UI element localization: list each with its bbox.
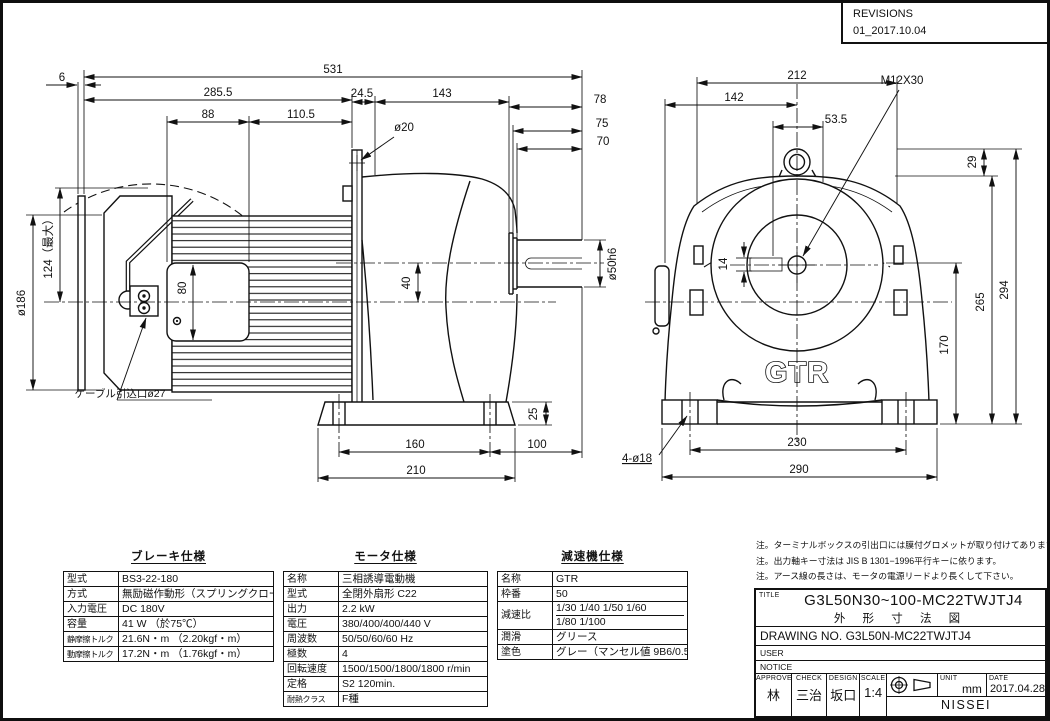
side-view [44, 150, 604, 458]
reducer-spec-title: 減速機仕様 [497, 548, 688, 564]
spec-row: 電圧380/400/400/440 V [284, 617, 488, 632]
dim-80: 80 [177, 282, 189, 295]
spec-row: 入力電圧DC 180V [64, 602, 274, 617]
spec-row: 枠番50 [498, 587, 688, 602]
dim-100: 100 [527, 439, 546, 451]
spec-label: 型式 [284, 587, 339, 602]
spec-value: 17.2N・m （1.76kgf・m） [119, 647, 274, 662]
dim-70: 70 [597, 136, 610, 148]
spec-value: 2.2 kW [339, 602, 488, 617]
note-line: 注。ターミナルボックスの引出口には膜付グロメットが取り付けてあります。 [756, 538, 1048, 554]
spec-value: 1/30 1/40 1/50 1/601/80 1/100 [553, 602, 688, 630]
spec-row: 動摩擦トルク17.2N・m （1.76kgf・m） [64, 647, 274, 662]
spec-row: 周波数50/50/60/60 Hz [284, 632, 488, 647]
spec-value: 50 [553, 587, 688, 602]
spec-value: グレー（マンセル値 9B6/0.5） [553, 645, 688, 660]
notice-row: NOTICE [756, 661, 1045, 674]
spec-label: 耐熱クラス [284, 692, 339, 707]
signature-row: APPROVE 林 CHECK 三治 DESIGN 坂口 SCALE 1:4 [756, 674, 1045, 721]
unit-label: UNIT [940, 675, 958, 682]
spec-label: 容量 [64, 617, 119, 632]
spec-value: グリース [553, 630, 688, 645]
spec-label: 潤滑 [498, 630, 553, 645]
title-label: TITLE [759, 592, 780, 599]
spec-row: 回転速度1500/1500/1800/1800 r/min [284, 662, 488, 677]
dim-110-5: 110.5 [287, 109, 315, 121]
note-line: 注。アース線の長さは、モータの電源リードより長くして下さい。 [756, 569, 1048, 585]
spec-row: 容量41 W （於75℃） [64, 617, 274, 632]
spec-label: 塗色 [498, 645, 553, 660]
drawing-title: G3L50N30~100-MC22TWJTJ4 [782, 592, 1045, 609]
spec-row: 出力2.2 kW [284, 602, 488, 617]
flange-hole-label: ø20 [394, 122, 414, 134]
date-value: 2017.04.28 [990, 683, 1045, 695]
spec-value: BS3-22-180 [119, 572, 274, 587]
motor-od-label: ø186 [16, 290, 28, 316]
dimension-drawing: 6 531 285.5 88 110.5 24.5 143 78 75 [0, 0, 1050, 540]
spec-row: 潤滑グリース [498, 630, 688, 645]
drawing-no-row: DRAWING NO. G3L50N-MC22TWJTJ4 [756, 627, 1045, 646]
check-name: 三治 [792, 685, 826, 704]
title-block: TITLE G3L50N30~100-MC22TWJTJ4 外 形 寸 法 図 … [754, 588, 1047, 718]
front-view: GTR [645, 84, 952, 456]
spec-row: 方式無励磁作動形（スプリングクローズ） [64, 587, 274, 602]
spec-label: 静摩擦トルク [64, 632, 119, 647]
spec-row: 塗色グレー（マンセル値 9B6/0.5） [498, 645, 688, 660]
spec-value: 380/400/400/440 V [339, 617, 488, 632]
dim-212: 212 [787, 70, 806, 82]
title-row: TITLE G3L50N30~100-MC22TWJTJ4 外 形 寸 法 図 [756, 590, 1045, 627]
spec-value: 41 W （於75℃） [119, 617, 274, 632]
unit-value: mm [938, 682, 982, 696]
dim-25: 25 [528, 408, 540, 421]
approve-name: 林 [756, 685, 791, 704]
dim-143: 143 [432, 88, 451, 100]
dim-210: 210 [406, 465, 425, 477]
shaft-dia-label: ø50h6 [607, 248, 619, 281]
spec-row: 名称GTR [498, 572, 688, 587]
spec-label: 動摩擦トルク [64, 647, 119, 662]
unit-cell: UNIT mm [938, 674, 987, 696]
spec-value: 三相誘導電動機 [339, 572, 488, 587]
spec-subvalue: 1/30 1/40 1/50 1/60 [556, 602, 684, 615]
notice-label: NOTICE [760, 662, 792, 672]
dim-24-5: 24.5 [351, 88, 373, 100]
drawing-no: G3L50N-MC22TWJTJ4 [846, 629, 971, 643]
spec-row: 型式BS3-22-180 [64, 572, 274, 587]
dim-230: 230 [787, 437, 806, 449]
drawing-sheet: REVISIONS 01_2017.10.04 [0, 0, 1050, 721]
dim-40: 40 [401, 277, 413, 290]
dim-88: 88 [202, 109, 215, 121]
spec-label: 型式 [64, 572, 119, 587]
spec-label: 方式 [64, 587, 119, 602]
spec-label: 名称 [498, 572, 553, 587]
motor-spec-table: モータ仕様 名称三相誘導電動機型式全閉外扇形 C22出力2.2 kW電圧380/… [283, 548, 488, 707]
notes: 注。ターミナルボックスの引出口には膜付グロメットが取り付けてあります。注。出力軸… [756, 538, 1048, 585]
spec-label: 電圧 [284, 617, 339, 632]
dim-78: 78 [594, 94, 607, 106]
scale-label: SCALE [860, 675, 886, 682]
dim-294: 294 [999, 280, 1011, 300]
design-cell: DESIGN 坂口 [827, 674, 860, 721]
spec-label: 枠番 [498, 587, 553, 602]
check-label: CHECK [792, 675, 826, 682]
title-block-right: UNIT mm DATE 2017.04.28 NISSEI CORPORATI… [887, 674, 1045, 721]
drawing-no-label: DRAWING NO. [760, 629, 842, 643]
dim-531: 531 [323, 64, 342, 76]
dim-29: 29 [967, 156, 979, 169]
dim-75: 75 [596, 118, 609, 130]
spec-value: 全閉外扇形 C22 [339, 587, 488, 602]
spec-value: 1500/1500/1800/1800 r/min [339, 662, 488, 677]
spec-label: 回転速度 [284, 662, 339, 677]
spec-row: 定格S2 120min. [284, 677, 488, 692]
spec-row: 名称三相誘導電動機 [284, 572, 488, 587]
spec-value: DC 180V [119, 602, 274, 617]
spec-label: 定格 [284, 677, 339, 692]
note-line: 注。出力軸キー寸法は JIS B 1301−1996平行キーに依ります。 [756, 554, 1048, 570]
user-row: USER [756, 646, 1045, 661]
brake-spec-title: ブレーキ仕様 [63, 548, 274, 564]
dim-285-5: 285.5 [204, 87, 233, 99]
spec-label: 入力電圧 [64, 602, 119, 617]
reducer-spec-table: 減速機仕様 名称GTR枠番50減速比1/30 1/40 1/50 1/601/8… [497, 548, 688, 660]
spec-label: 名称 [284, 572, 339, 587]
design-name: 坂口 [827, 685, 859, 704]
scale-value: 1:4 [860, 685, 886, 700]
spec-label: 周波数 [284, 632, 339, 647]
spec-row: 極数4 [284, 647, 488, 662]
spec-value: GTR [553, 572, 688, 587]
spec-label: 出力 [284, 602, 339, 617]
cable-entry-label: ケーブル引込口ø27 [75, 387, 166, 400]
projection-symbol-icon [887, 674, 938, 696]
spec-value: 4 [339, 647, 488, 662]
date-label: DATE [989, 675, 1008, 682]
dim-142: 142 [724, 92, 743, 104]
date-cell: DATE 2017.04.28 [987, 674, 1045, 696]
dim-170: 170 [939, 335, 951, 354]
spec-value: 21.6N・m （2.20kgf・m） [119, 632, 274, 647]
dim-14: 14 [718, 257, 730, 270]
spec-row: 型式全閉外扇形 C22 [284, 587, 488, 602]
spec-value: S2 120min. [339, 677, 488, 692]
approve-label: APPROVE [756, 675, 791, 682]
spec-row: 耐熱クラスF種 [284, 692, 488, 707]
lever-max-label: 124（最大） [41, 213, 55, 278]
check-cell: CHECK 三治 [792, 674, 827, 721]
base-holes-label: 4-ø18 [622, 453, 652, 465]
spec-label: 極数 [284, 647, 339, 662]
spec-value: 50/50/60/60 Hz [339, 632, 488, 647]
drawing-subtitle: 外 形 寸 法 図 [756, 610, 1045, 626]
spec-value: F種 [339, 692, 488, 707]
dim-265: 265 [975, 292, 987, 311]
spec-row: 静摩擦トルク21.6N・m （2.20kgf・m） [64, 632, 274, 647]
spec-label: 減速比 [498, 602, 553, 630]
approve-cell: APPROVE 林 [756, 674, 792, 721]
brake-spec-table: ブレーキ仕様 型式BS3-22-180方式無励磁作動形（スプリングクローズ）入力… [63, 548, 274, 662]
dim-6: 6 [59, 72, 65, 84]
design-label: DESIGN [827, 675, 859, 682]
spec-row: 減速比1/30 1/40 1/50 1/601/80 1/100 [498, 602, 688, 630]
spec-value: 無励磁作動形（スプリングクローズ） [119, 587, 274, 602]
scale-cell: SCALE 1:4 [860, 674, 887, 721]
dim-160: 160 [405, 439, 424, 451]
dim-290: 290 [789, 464, 808, 476]
company-name: NISSEI CORPORATION [887, 697, 1045, 721]
motor-spec-title: モータ仕様 [283, 548, 488, 564]
spec-subvalue: 1/80 1/100 [556, 615, 684, 629]
user-label: USER [760, 648, 784, 658]
eyebolt-tap-label: M12X30 [881, 75, 924, 87]
dim-53-5: 53.5 [825, 114, 847, 126]
